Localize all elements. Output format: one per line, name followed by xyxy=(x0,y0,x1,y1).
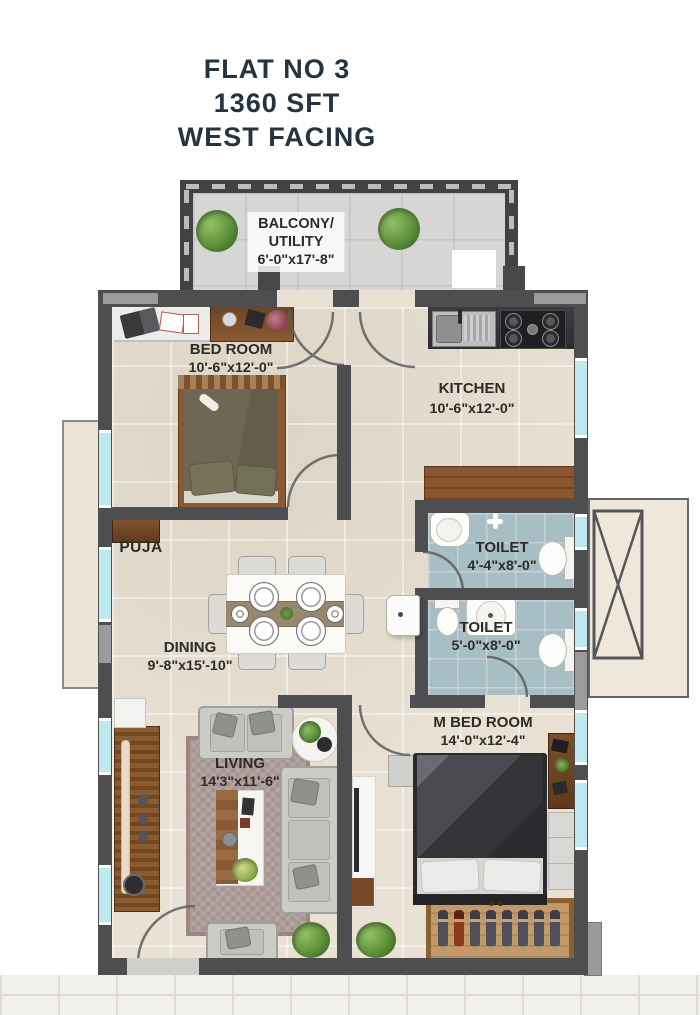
top-wall-vent-left xyxy=(103,293,158,304)
puja-label: PUJA xyxy=(119,538,162,557)
bedroom-label: BED ROOM 10'-6"x12'-0" xyxy=(189,340,274,378)
toilet-top-label: TOILET 4'-4"x8'-0" xyxy=(467,538,536,576)
toilet-left-wall-upper xyxy=(415,500,428,552)
toilet-top-name: TOILET xyxy=(467,538,536,557)
kitchen-dims: 10'-6"x12'-0" xyxy=(430,399,515,420)
balcony-door-center-post xyxy=(333,290,359,307)
toilet-top-outer-wall xyxy=(415,500,588,513)
dining-label: DINING 9'-8"x15'-10" xyxy=(148,638,233,676)
toilet-bottom-label: TOILET 5'-0"x8'-0" xyxy=(451,618,520,656)
toilet-bottom-name: TOILET xyxy=(451,618,520,637)
kitchen-name: KITCHEN xyxy=(430,378,515,399)
toilet-bottom-door-arc xyxy=(487,657,527,697)
toilet-divider-wall xyxy=(415,588,588,600)
toilet-top-door-arc xyxy=(423,552,463,592)
master-bedroom-door-arc xyxy=(360,705,410,755)
balcony-door-left-arc xyxy=(277,312,333,368)
main-entrance-door-arc xyxy=(138,906,195,963)
dining-wash-basin-drain xyxy=(398,612,403,617)
window-left-2 xyxy=(99,547,111,622)
master-top-wall-stub xyxy=(278,695,343,708)
floor-plan: FLAT NO 3 1360 SFT WEST FACING BALCONY/ … xyxy=(0,0,700,1015)
window-left-3 xyxy=(99,718,111,775)
toilet-bottom-dims: 5'-0"x8'-0" xyxy=(451,637,520,656)
bedroom-bottom-wall xyxy=(112,507,288,520)
bedroom-name: BED ROOM xyxy=(189,340,274,359)
master-bedroom-name: M BED ROOM xyxy=(433,713,532,732)
living-dims: 14'3"x11'-6" xyxy=(200,773,279,792)
window-toilet-top xyxy=(575,514,587,550)
living-name: LIVING xyxy=(200,754,279,773)
window-left-4 xyxy=(99,865,111,925)
window-left-1 xyxy=(99,430,111,508)
balcony-door-right-arc xyxy=(360,312,415,367)
bedroom-door-bottom-arc xyxy=(288,455,340,507)
dining-name: DINING xyxy=(148,638,233,657)
master-left-wall xyxy=(337,695,352,958)
toilet-bottom-wall-left xyxy=(410,695,485,708)
bedroom-right-wall xyxy=(337,365,351,520)
window-toilet-bottom xyxy=(575,608,587,650)
window-master-1 xyxy=(575,710,587,765)
toilet-top-dims: 4'-4"x8'-0" xyxy=(467,557,536,576)
main-entrance-threshold xyxy=(125,958,201,975)
living-label: LIVING 14'3"x11'-6" xyxy=(200,754,279,792)
top-wall-vent-right xyxy=(534,293,586,304)
bedroom-dims: 10'-6"x12'-0" xyxy=(189,359,274,378)
dining-wash-basin xyxy=(386,595,420,636)
bedroom-door-top-arc xyxy=(289,310,344,365)
master-bedroom-dims: 14'-0"x12'-4" xyxy=(433,732,532,751)
master-bedroom-label: M BED ROOM 14'-0"x12'-4" xyxy=(433,713,532,751)
right-wall-segment xyxy=(575,652,587,710)
window-kitchen xyxy=(575,358,587,438)
window-master-2 xyxy=(575,780,587,850)
dining-dims: 9'-8"x15'-10" xyxy=(148,657,233,676)
kitchen-label: KITCHEN 10'-6"x12'-0" xyxy=(430,378,515,420)
left-wall-segment xyxy=(99,625,111,663)
